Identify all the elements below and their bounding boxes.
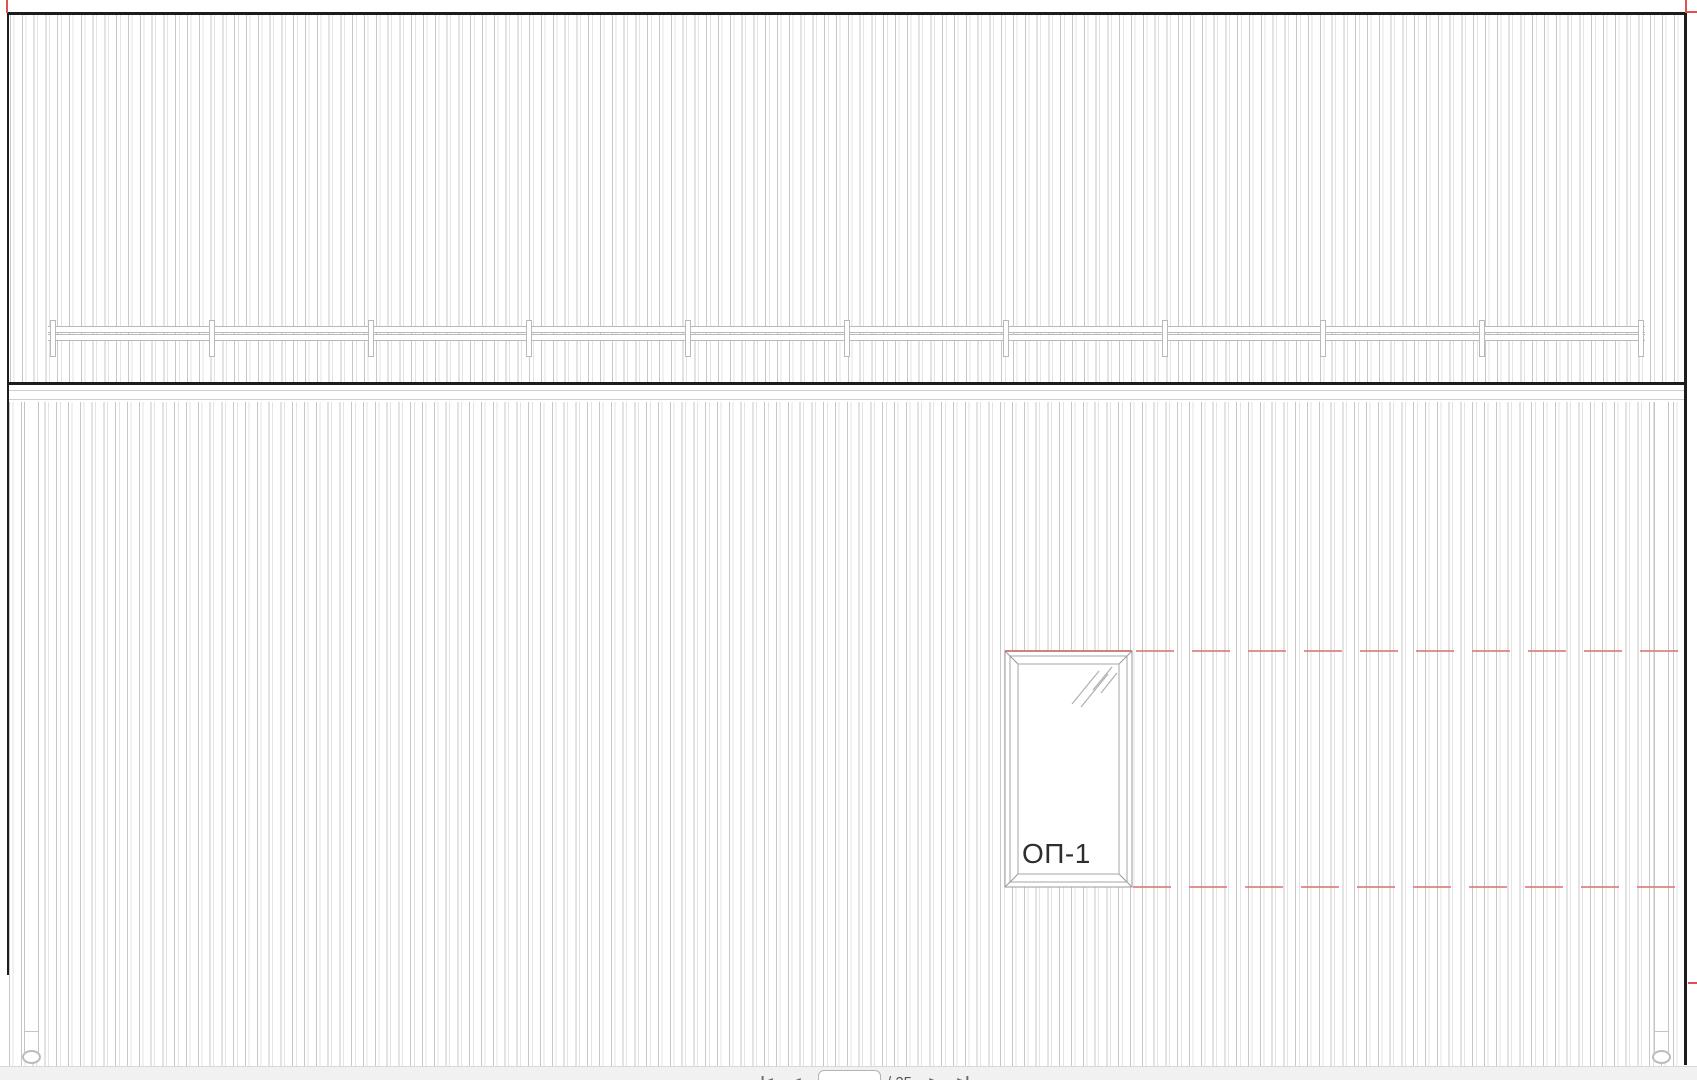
downspout-shoe-right	[1652, 1050, 1671, 1064]
railing-post	[526, 320, 532, 357]
railing-post	[844, 320, 850, 357]
downspout-left	[24, 402, 39, 1052]
parapet-edge-line	[7, 382, 1687, 385]
railing-post	[1479, 320, 1485, 357]
railing-post	[209, 320, 215, 357]
parapet-trim-line	[8, 390, 1684, 391]
downspout-shoe-left	[22, 1050, 41, 1064]
window-tag-label: ОП-1	[1022, 838, 1091, 870]
page-navigation: |< < / 25 > >|	[752, 1070, 978, 1080]
railing-post	[685, 320, 691, 357]
crop-handle-right	[1688, 982, 1697, 984]
railing-post	[50, 320, 56, 357]
previous-page-button[interactable]: <	[782, 1070, 812, 1080]
parapet-trim-line	[8, 399, 1684, 400]
railing-post	[1638, 320, 1644, 357]
markup-dashed-line-bottom	[1133, 886, 1678, 888]
next-page-button[interactable]: >	[918, 1070, 948, 1080]
markup-dashed-line-top	[1136, 650, 1678, 652]
lower-wall-siding	[9, 402, 1684, 1066]
railing-post	[368, 320, 374, 357]
railing-post	[1162, 320, 1168, 357]
downspout-right	[1654, 402, 1669, 1052]
crop-handle-top-left	[6, 0, 8, 13]
markup-line-window-head	[1005, 650, 1132, 652]
last-page-button[interactable]: >|	[948, 1070, 978, 1080]
downspout-joint	[1655, 1031, 1668, 1032]
crop-handle-top-right	[1686, 11, 1697, 13]
left-corner-line	[7, 12, 9, 975]
roof-edge-line	[7, 12, 1687, 15]
first-page-button[interactable]: |<	[752, 1070, 782, 1080]
page-number-input[interactable]	[818, 1070, 881, 1080]
railing-post	[1320, 320, 1326, 357]
drawing-viewport: ОП-1 |< < / 25 > >|	[0, 0, 1697, 1080]
right-corner-line	[1684, 12, 1687, 1065]
railing-post	[1003, 320, 1009, 357]
page-total-label: / 25	[887, 1070, 912, 1080]
viewer-bottom-bar: |< < / 25 > >|	[0, 1066, 1697, 1080]
downspout-joint	[25, 1031, 38, 1032]
